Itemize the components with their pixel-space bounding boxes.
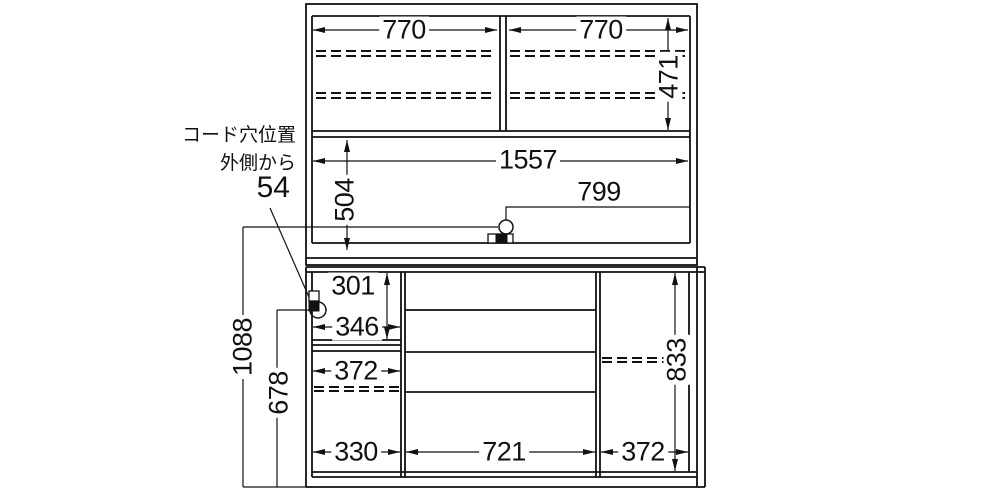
dim-cord-hole-height-lower: 678 [266, 368, 293, 418]
dim-right-inner-height: 833 [664, 335, 691, 385]
dim-left-bottom-width: 330 [331, 439, 381, 466]
dim-upper-inner-width: 1557 [496, 147, 560, 174]
cord-hole-note: コード穴位置 外側から 54 [178, 126, 296, 201]
dim-cord-hole-height-total: 1088 [230, 315, 257, 379]
cord-hole-circle-upper [499, 220, 513, 234]
dim-upper-door-height: 471 [656, 52, 683, 102]
dim-right-inner-width: 372 [618, 439, 668, 466]
dim-upper-open-height: 504 [332, 175, 359, 225]
dim-left-inner-width: 372 [331, 358, 381, 385]
cord-hole-note-value: 54 [178, 175, 296, 201]
dim-niche-width: 346 [332, 314, 382, 341]
upper-shelf-dashed-lines [316, 51, 686, 98]
cabinet-dimension-diagram: 770 770 471 1557 504 799 1088 678 301 34… [0, 0, 1000, 500]
outlet-symbol-lower [309, 291, 319, 301]
dim-cord-hole-from-side: 799 [574, 179, 624, 206]
diagram-linework [0, 0, 1000, 500]
cord-hole-upper [488, 220, 513, 243]
cord-hole-note-line1: コード穴位置 [178, 126, 296, 145]
dimension-lines [243, 18, 690, 487]
dim-upper-right-width: 770 [576, 17, 626, 44]
dim-niche-height: 301 [328, 273, 378, 300]
dim-upper-left-width: 770 [379, 17, 429, 44]
cord-hole-lower [309, 291, 326, 318]
cord-hole-leader-upper [506, 207, 690, 220]
dim-drawer-width: 721 [479, 439, 529, 466]
